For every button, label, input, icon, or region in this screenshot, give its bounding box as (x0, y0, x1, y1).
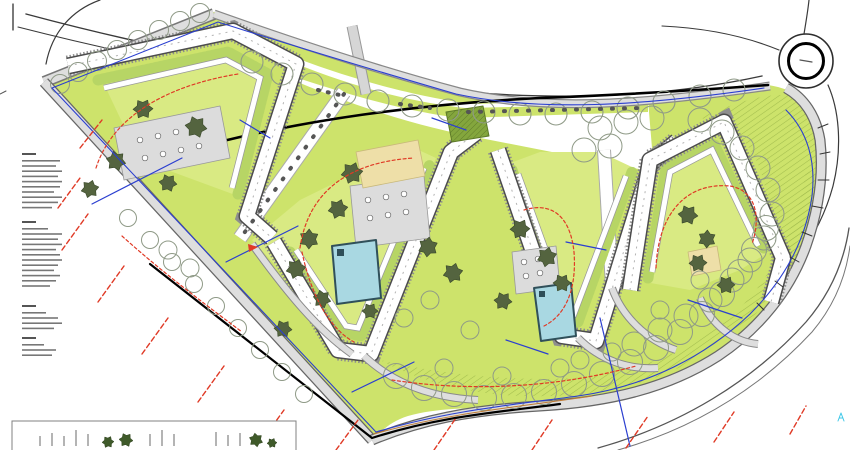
site-plan-drawing (0, 0, 850, 450)
section-legend-box (12, 421, 296, 450)
site-plan-canvas (0, 0, 850, 450)
roundabout (779, 34, 833, 88)
notes-annotation-block (22, 153, 62, 356)
